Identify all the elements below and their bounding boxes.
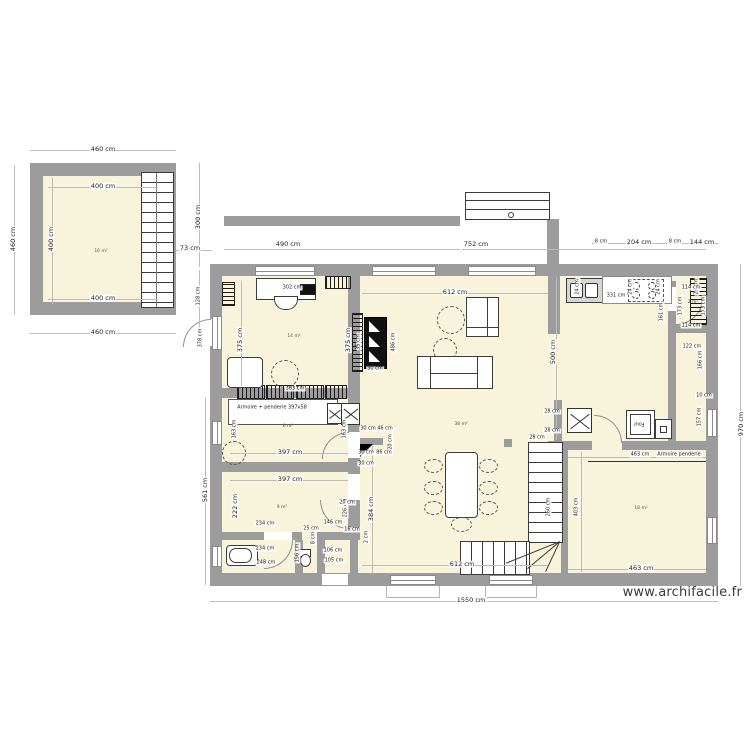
window[interactable] bbox=[212, 546, 222, 567]
dimension-label: 8 cm bbox=[312, 531, 317, 545]
dimension-label: 460 cm bbox=[10, 226, 17, 252]
room-area-label: 38 m² bbox=[453, 423, 468, 428]
armchair[interactable] bbox=[227, 357, 263, 388]
dimension-label: 30 cm bbox=[359, 427, 377, 432]
staircase-detached[interactable] bbox=[141, 172, 174, 308]
dimension-label: 30 cm bbox=[357, 462, 375, 467]
round-table[interactable] bbox=[271, 360, 299, 388]
shelf-unit[interactable] bbox=[222, 282, 235, 306]
dimension-label: 28 cm bbox=[528, 436, 546, 441]
round-table[interactable] bbox=[437, 306, 465, 334]
window[interactable] bbox=[212, 421, 222, 445]
dimension-label: 163 cm bbox=[233, 419, 238, 440]
dimension-label: 204 cm bbox=[626, 239, 652, 246]
dimension-label: 375 cm bbox=[237, 327, 244, 353]
wall[interactable] bbox=[222, 462, 348, 472]
wall[interactable] bbox=[317, 532, 358, 540]
dimension-label: 378 cm bbox=[199, 328, 204, 349]
kitchen-sink[interactable] bbox=[566, 278, 604, 303]
dimension-label: 156 cm bbox=[296, 543, 301, 564]
dimension-label: 397 cm bbox=[277, 476, 303, 483]
dimension-label: 397 cm bbox=[277, 449, 303, 456]
wardrobe-line[interactable] bbox=[588, 461, 706, 462]
window-sill bbox=[485, 586, 537, 598]
corner-sofa[interactable] bbox=[466, 297, 499, 337]
dimension-label: 331 cm bbox=[606, 294, 627, 299]
dimension-label: 400 cm bbox=[90, 183, 116, 190]
dimension-label: 73 cm bbox=[179, 245, 201, 252]
dimension-label: 403 cm bbox=[575, 497, 580, 518]
dimension-label: 128 cm bbox=[197, 286, 202, 307]
dimension-label: 375 cm bbox=[345, 327, 352, 353]
sofa[interactable] bbox=[417, 356, 493, 389]
archifacile-watermark: www.archifacile.fr bbox=[623, 585, 742, 600]
dimension-label: 486 cm bbox=[392, 332, 397, 353]
dimension-label: 400 cm bbox=[90, 295, 116, 302]
dimension-label: Four bbox=[633, 421, 646, 426]
dimension-label: 8 cm bbox=[594, 240, 608, 245]
window[interactable] bbox=[707, 409, 717, 437]
dimension-label: 157 cm bbox=[698, 407, 703, 428]
dimension-label: 970 cm bbox=[738, 411, 745, 437]
dimension-label: 105 cm bbox=[324, 559, 345, 564]
wall[interactable] bbox=[622, 441, 706, 450]
wall[interactable] bbox=[548, 276, 560, 334]
door-opening bbox=[322, 574, 348, 585]
dimension-label: 234 cm bbox=[255, 522, 276, 527]
dining-chair[interactable] bbox=[424, 481, 443, 495]
dimension-label: 163 cm bbox=[343, 419, 348, 440]
dimension-label: 161 cm bbox=[660, 302, 665, 323]
window[interactable] bbox=[372, 266, 436, 276]
dimension-label: 222 cm bbox=[232, 493, 239, 519]
wall[interactable] bbox=[30, 163, 43, 315]
dimension-label: 500 cm bbox=[550, 339, 557, 365]
washing-machine[interactable] bbox=[567, 408, 592, 433]
dimension-label: 35 cm bbox=[357, 333, 362, 351]
dimension-label: 612 cm bbox=[442, 289, 468, 296]
window-sill bbox=[386, 586, 440, 598]
dimension-label: 363 cm bbox=[285, 387, 306, 392]
dimension-label: 86 cm bbox=[375, 451, 393, 456]
window[interactable] bbox=[707, 517, 717, 544]
wood-stove[interactable] bbox=[364, 317, 387, 369]
dimension-label: 300 cm bbox=[195, 204, 202, 230]
room-area-label: 14 m² bbox=[286, 335, 301, 340]
dimension-label: 490 cm bbox=[275, 241, 301, 248]
dining-chair[interactable] bbox=[424, 459, 443, 473]
dimension-label: 20 cm bbox=[338, 501, 356, 506]
dimension-label: 16 cm bbox=[343, 528, 361, 533]
dimension-label: 10 cm bbox=[695, 394, 713, 399]
dimension-label: 612 cm bbox=[449, 561, 475, 568]
dimension-label: Armoire penderie bbox=[656, 453, 702, 458]
dimension-label: 28 cm bbox=[543, 429, 561, 434]
dimension-label: 106 cm bbox=[323, 549, 344, 554]
dimension-label: 752 cm bbox=[463, 241, 489, 248]
dimension-label: 30 cm bbox=[366, 367, 384, 372]
wardrobe[interactable] bbox=[228, 399, 338, 425]
dining-chair[interactable] bbox=[479, 481, 498, 495]
dimension-label: 114 cm bbox=[681, 324, 702, 329]
washing-machine[interactable] bbox=[327, 403, 342, 424]
bathtub[interactable] bbox=[226, 545, 258, 566]
window[interactable] bbox=[255, 266, 315, 276]
dimension-label: 166 cm bbox=[699, 350, 704, 371]
dining-chair[interactable] bbox=[451, 517, 472, 532]
room-area-label: 16 m² bbox=[93, 250, 108, 255]
window[interactable] bbox=[390, 575, 436, 585]
staircase-main[interactable] bbox=[528, 442, 563, 543]
dimension-label: 20 cm bbox=[389, 433, 394, 451]
post[interactable] bbox=[504, 439, 512, 447]
dimension-label: 114 cm bbox=[681, 286, 702, 291]
dining-table[interactable] bbox=[445, 452, 478, 518]
dimension-label: 561 cm bbox=[202, 477, 209, 503]
dimension-label: 24 cm bbox=[629, 278, 634, 296]
room-area-label: 9 m² bbox=[276, 506, 288, 511]
dimension-label: 46 cm bbox=[376, 427, 394, 432]
floor-plan-canvas: 460 cm400 cm460 cm400 cm400 cm460 cm16 m… bbox=[0, 0, 750, 750]
dimension-label: 24 cm bbox=[576, 278, 581, 296]
dimension-label: 248 cm bbox=[256, 561, 277, 566]
door-opening bbox=[264, 532, 292, 540]
room-area-label: 18 m² bbox=[633, 507, 648, 512]
dimension-label: 234 cm bbox=[255, 547, 276, 552]
dining-chair[interactable] bbox=[479, 459, 498, 473]
dimension-label: 30 cm bbox=[357, 451, 375, 456]
door-opening bbox=[348, 474, 360, 500]
dimension-label: 463 cm bbox=[630, 453, 651, 458]
dining-chair[interactable] bbox=[424, 501, 443, 515]
dimension-label: 173 cm bbox=[702, 296, 707, 317]
dimension-label: 173 cm bbox=[679, 296, 684, 317]
dimension-label: 24 cm bbox=[657, 278, 662, 296]
window[interactable] bbox=[468, 266, 536, 276]
room-area-label: 2 m² bbox=[687, 301, 699, 306]
garden-wall[interactable] bbox=[224, 216, 460, 226]
dimension-label: 302 cm bbox=[282, 286, 303, 291]
dimension-label: 384 cm bbox=[368, 496, 375, 522]
dimension-label: Armoire + penderie 397x58 bbox=[236, 406, 308, 411]
dimension-label: 460 cm bbox=[90, 146, 116, 153]
dimension-label: 400 cm bbox=[48, 226, 55, 252]
dimension-label: 463 cm bbox=[628, 565, 654, 572]
dimension-label: 146 cm bbox=[323, 521, 344, 526]
shelf-unit[interactable] bbox=[325, 276, 351, 289]
outdoor-table[interactable] bbox=[465, 192, 550, 220]
dining-chair[interactable] bbox=[479, 501, 498, 515]
toilet-bowl[interactable] bbox=[300, 554, 311, 567]
window[interactable] bbox=[489, 575, 533, 585]
dimension-label: 1550 cm bbox=[456, 597, 487, 604]
shelf-unit[interactable] bbox=[325, 385, 347, 399]
dimension-label: 144 cm bbox=[689, 239, 715, 246]
microwave[interactable] bbox=[655, 419, 672, 439]
dimension-label: 8 cm bbox=[668, 240, 682, 245]
dimension-label: 28 cm bbox=[543, 410, 561, 415]
keyboard-icon bbox=[300, 284, 316, 295]
dimension-label: 260 cm bbox=[547, 497, 552, 518]
room-area-label: 6 m² bbox=[282, 425, 294, 430]
window[interactable] bbox=[212, 316, 222, 350]
dimension-label: 2 cm bbox=[365, 530, 370, 544]
dimension-label: 460 cm bbox=[90, 329, 116, 336]
